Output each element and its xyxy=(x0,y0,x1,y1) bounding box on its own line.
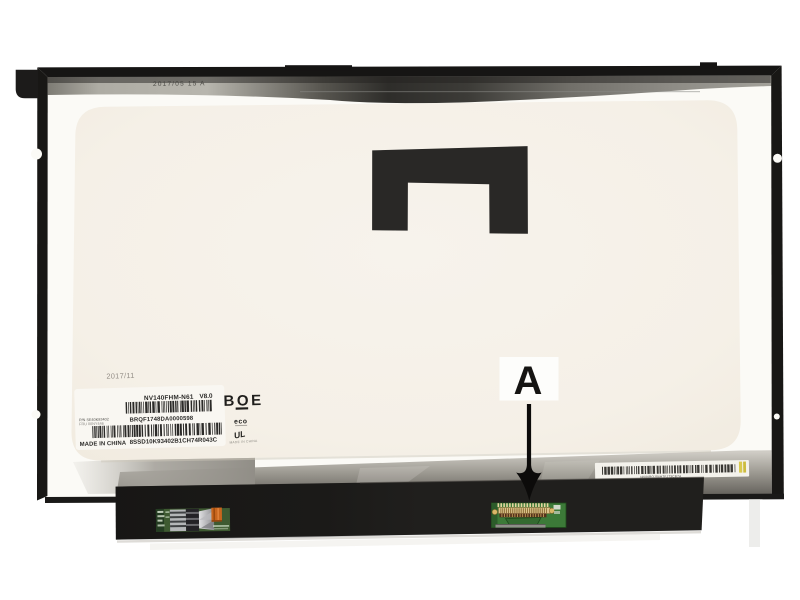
svg-text:2017/05 15 A: 2017/05 15 A xyxy=(153,80,206,88)
svg-text:eco: eco xyxy=(234,418,248,425)
svg-text:2017/11: 2017/11 xyxy=(106,371,135,381)
svg-text:A: A xyxy=(514,359,543,403)
svg-text:FRU 00NY446: FRU 00NY446 xyxy=(79,422,104,427)
svg-text:V8.0: V8.0 xyxy=(199,393,213,400)
svg-text:NV140FHM-N61: NV140FHM-N61 xyxy=(144,394,194,402)
svg-text:BOE: BOE xyxy=(223,392,264,410)
